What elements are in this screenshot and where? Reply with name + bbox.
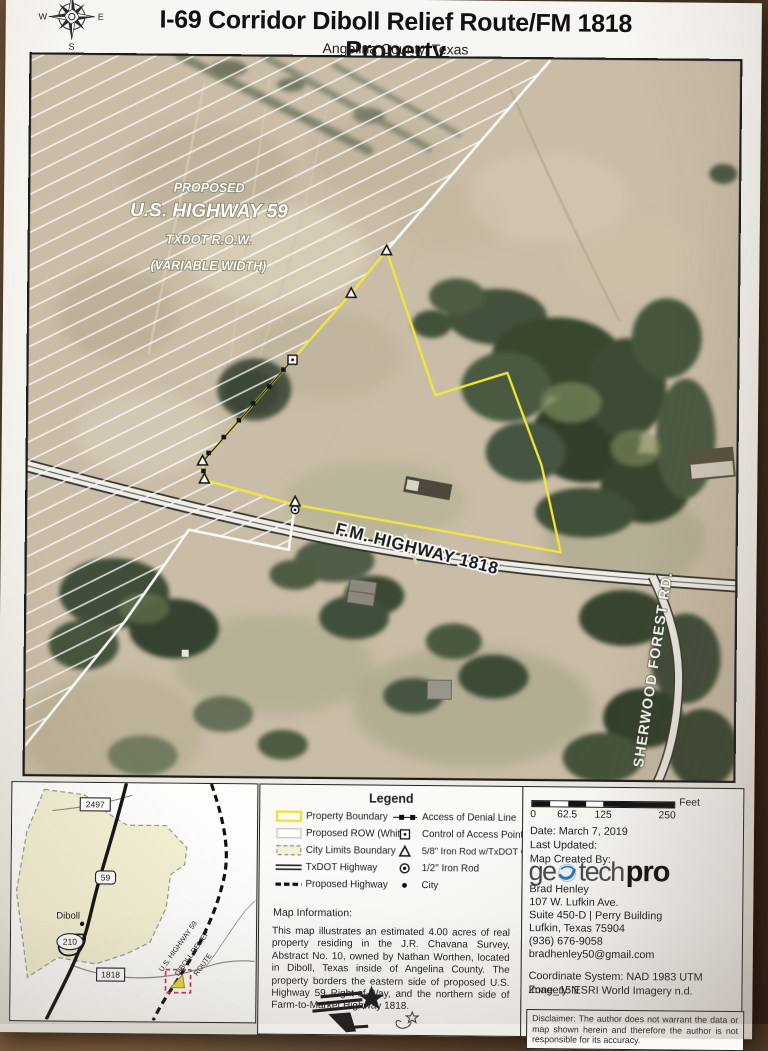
svg-text:U.S. HIGHWAY 59: U.S. HIGHWAY 59 — [130, 200, 288, 223]
compass-rose-icon: N E S W — [33, 0, 110, 57]
last-updated: Last Updated: — [530, 839, 597, 853]
legend-item: Property Boundary — [272, 808, 388, 825]
legend-item: 5/8" Iron Rod w/TxDOT Cap — [388, 843, 538, 860]
city-dot-symbol — [387, 878, 421, 891]
locator-inset-map: 2497 59 210 1818 Diboll U.S. HIGHWAY 59 … — [9, 781, 258, 1023]
legend-item: City — [387, 877, 438, 893]
scale-tick: 125 — [595, 810, 612, 821]
property-boundary-swatch — [272, 809, 306, 822]
svg-text:TXDOT R.O.W.: TXDOT R.O.W. — [166, 233, 252, 248]
txdot-logo — [298, 983, 448, 1036]
phone-number: (936) 676-9058 — [529, 935, 603, 949]
scale-unit-label: Feet — [679, 798, 700, 809]
credits-panel: Feet 0 62.5 125 250 Date: March 7, 2019 … — [520, 786, 744, 1039]
legend-item: City Limits Boundary — [272, 842, 396, 859]
printed-map-sheet: I-69 Corridor Diboll Relief Route/FM 181… — [0, 0, 762, 1039]
compass-s-label: S — [68, 42, 74, 52]
disclaimer-box: Disclaimer: The author does not warrant … — [526, 1009, 744, 1051]
scale-tick: 62.5 — [557, 809, 577, 820]
svg-text:210: 210 — [63, 937, 78, 947]
iron-rod-txdot-cap-symbol — [388, 844, 422, 857]
legend-item: Proposed Highway — [271, 876, 387, 893]
email-address: bradhenley50@gmail.com — [529, 948, 655, 963]
legend-panel: Legend Property Boundary Proposed ROW (W… — [257, 783, 523, 1037]
main-map: PROPOSED U.S. HIGHWAY 59 TXDOT R.O.W. (V… — [23, 52, 743, 783]
control-access-point-symbol — [388, 827, 422, 840]
txdot-highway-swatch — [272, 860, 306, 873]
imagery-credit: Imagery: ESRI World Imagery n.d. — [528, 984, 692, 999]
control-of-access-marker — [288, 355, 297, 364]
scale-tick: 250 — [659, 810, 676, 821]
legend-item: TxDOT Highway — [272, 859, 378, 876]
inset-city-label: Diboll — [56, 911, 80, 922]
legend-item: Control of Access Point — [388, 826, 523, 843]
svg-text:59: 59 — [101, 872, 111, 882]
svg-text:2497: 2497 — [86, 799, 105, 809]
half-inch-iron-rod-marker — [291, 506, 299, 514]
access-denial-line-symbol — [388, 810, 422, 823]
geotechpro-globe-icon — [557, 862, 578, 883]
svg-text:1818: 1818 — [101, 969, 120, 979]
inset-city-dot — [80, 922, 84, 926]
map-information-heading: Map Information: — [273, 907, 352, 920]
legend-item: 1/2" Iron Rod — [388, 860, 480, 877]
compass-w-label: W — [39, 11, 48, 21]
iron-rod-half-symbol — [388, 861, 422, 874]
legend-title: Legend — [260, 790, 522, 807]
proposed-row-swatch — [272, 826, 306, 839]
scale-tick: 0 — [530, 809, 536, 820]
svg-text:PROPOSED: PROPOSED — [174, 181, 245, 196]
proposed-highway-swatch — [271, 877, 305, 890]
author-name: Brad Henley — [529, 883, 589, 897]
map-date: Date: March 7, 2019 — [530, 825, 628, 839]
legend-item: Access of Denial Line — [388, 809, 516, 826]
svg-text:(VARIABLE WIDTH): (VARIABLE WIDTH) — [150, 258, 266, 273]
compass-e-label: E — [98, 12, 104, 22]
scale-bar — [531, 800, 675, 808]
city-limits-swatch — [272, 843, 306, 856]
